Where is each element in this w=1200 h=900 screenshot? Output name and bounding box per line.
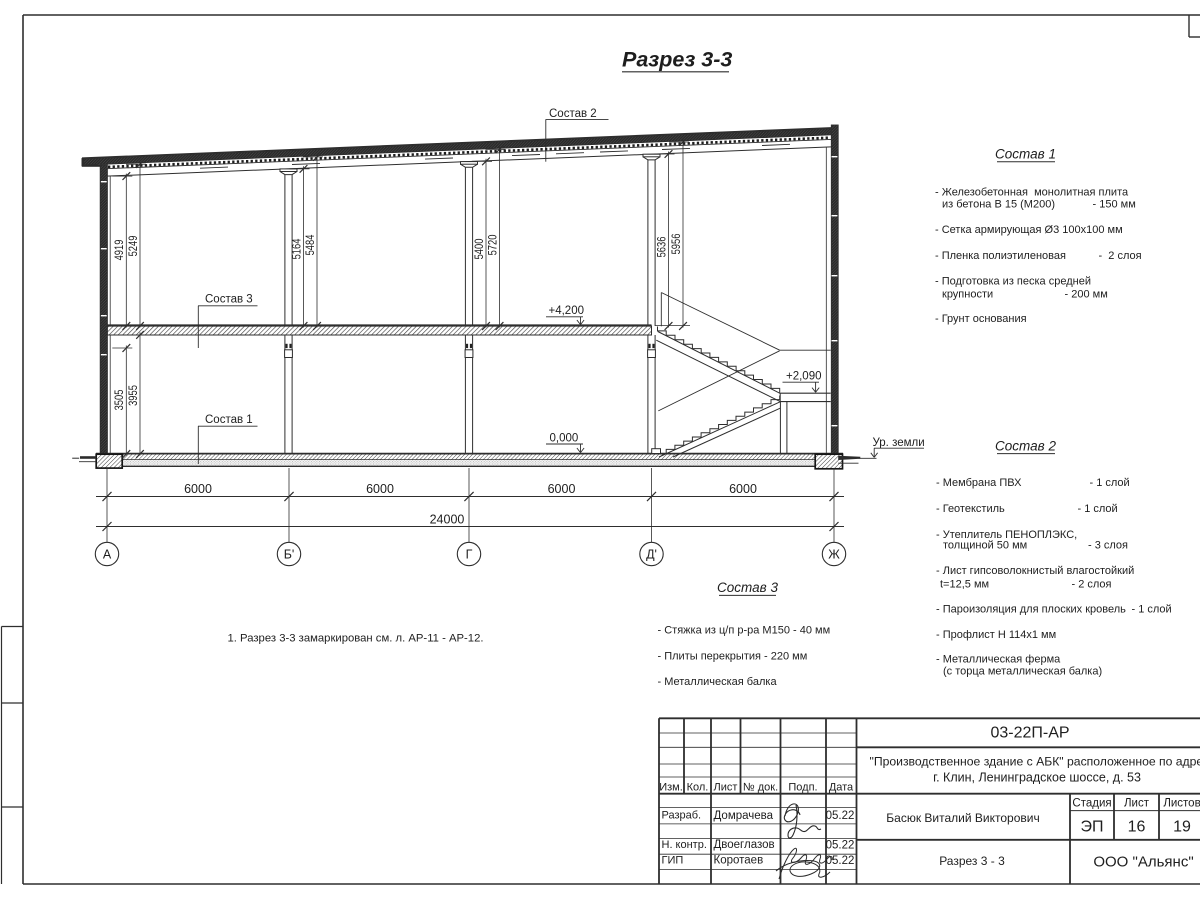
svg-text:Басюк Виталий Викторович: Басюк Виталий Викторович (886, 811, 1039, 825)
svg-text:5164: 5164 (290, 239, 303, 260)
svg-text:Ур. земли: Ур. земли (873, 437, 925, 449)
svg-text:16: 16 (1128, 819, 1146, 836)
svg-text:Состав 1: Состав 1 (995, 147, 1056, 162)
svg-text:- Металлическая балка: - Металлическая балка (658, 676, 778, 688)
svg-text:+4,200: +4,200 (549, 305, 585, 317)
svg-text:6000: 6000 (366, 482, 394, 496)
svg-text:№ док.: № док. (743, 782, 778, 794)
svg-text:05.22: 05.22 (826, 810, 855, 822)
svg-text:(с торца металлическая балка): (с торца металлическая балка) (943, 666, 1102, 678)
svg-text:- 2 слоя: - 2 слоя (1072, 578, 1112, 590)
svg-text:Коротаев: Коротаев (714, 855, 764, 867)
svg-text:6000: 6000 (729, 482, 757, 496)
svg-text:- Металлическая ферма: - Металлическая ферма (936, 653, 1061, 665)
svg-text:- Сетка армирующая Ø3 100х100: - Сетка армирующая Ø3 100х100 мм (935, 224, 1123, 236)
svg-text:"Производственное здание с АБК: "Производственное здание с АБК" располож… (870, 755, 1200, 769)
svg-text:- Пароизоляция для плоских кро: - Пароизоляция для плоских кровель (936, 603, 1126, 615)
svg-text:Кол.: Кол. (687, 782, 709, 794)
svg-text:Двоеглазов: Двоеглазов (714, 839, 775, 851)
svg-text:t=12,5 мм: t=12,5 мм (940, 578, 989, 590)
svg-text:г. Клин, Ленинградское шоссе,: г. Клин, Ленинградское шоссе, д. 53 (933, 770, 1141, 784)
svg-text:- 1 слой: - 1 слой (1078, 503, 1118, 515)
svg-text:3505: 3505 (113, 390, 126, 411)
svg-text:- 1 слой: - 1 слой (1132, 603, 1172, 615)
svg-text:5956: 5956 (670, 234, 683, 255)
svg-text:Состав 2: Состав 2 (995, 438, 1056, 453)
svg-text:Разрез 3-3: Разрез 3-3 (622, 48, 732, 72)
svg-text:24000: 24000 (430, 512, 465, 526)
svg-text:ГИП: ГИП (662, 855, 684, 867)
svg-text:Стадия: Стадия (1072, 798, 1111, 810)
svg-text:Б': Б' (284, 547, 295, 561)
svg-text:Н. контр.: Н. контр. (662, 839, 707, 851)
svg-text:- 200 мм: - 200 мм (1065, 288, 1108, 300)
svg-text:1. Разрез 3-3 замаркирован см.: 1. Разрез 3-3 замаркирован см. л. АР-11 … (228, 633, 484, 645)
svg-text:Лист: Лист (1124, 798, 1150, 810)
svg-text:+2,090: +2,090 (786, 371, 822, 383)
svg-text:3955: 3955 (127, 385, 140, 406)
svg-text:5720: 5720 (486, 235, 499, 256)
svg-text:- 2 слоя: - 2 слоя (1099, 250, 1142, 262)
svg-text:А: А (103, 547, 112, 561)
svg-text:Д': Д' (646, 547, 657, 561)
svg-text:6000: 6000 (548, 482, 576, 496)
svg-text:5636: 5636 (655, 237, 668, 258)
svg-text:Состав 2: Состав 2 (549, 108, 597, 120)
svg-text:- Мембрана ПВХ: - Мембрана ПВХ (936, 477, 1022, 489)
svg-text:ООО "Альянс": ООО "Альянс" (1093, 853, 1193, 870)
svg-text:ЭП: ЭП (1081, 819, 1104, 836)
svg-text:Разраб.: Разраб. (662, 810, 702, 822)
svg-text:19: 19 (1173, 819, 1191, 836)
svg-text:- Подготовка из песка средней: - Подготовка из песка средней (935, 276, 1091, 288)
svg-text:Подп.: Подп. (788, 782, 817, 794)
svg-text:5484: 5484 (304, 235, 317, 256)
svg-text:0,000: 0,000 (550, 432, 579, 444)
svg-text:Ж: Ж (828, 547, 840, 561)
svg-text:Изм.: Изм. (659, 782, 683, 794)
svg-text:Состав 1: Состав 1 (205, 414, 253, 426)
svg-text:Г: Г (466, 547, 473, 561)
svg-text:- 1 слой: - 1 слой (1090, 477, 1130, 489)
svg-text:Листов: Листов (1163, 798, 1200, 810)
svg-text:- Геотекстиль: - Геотекстиль (936, 503, 1005, 515)
svg-text:- 150 мм: - 150 мм (1093, 199, 1136, 211)
svg-text:Состав 3: Состав 3 (205, 294, 253, 306)
svg-text:- Лист гипсоволокнистый влагос: - Лист гипсоволокнистый влагостойкий (936, 565, 1134, 577)
svg-text:Лист: Лист (714, 782, 738, 794)
svg-text:05.22: 05.22 (826, 840, 855, 852)
svg-text:5400: 5400 (473, 239, 486, 260)
svg-text:- Пленка полиэтиленовая: - Пленка полиэтиленовая (935, 250, 1066, 262)
svg-text:- Железобетонная монолитная п: - Железобетонная монолитная плита (935, 186, 1129, 198)
svg-text:5249: 5249 (127, 236, 140, 257)
svg-text:- Стяжка из ц/п р-ра М150 - 40: - Стяжка из ц/п р-ра М150 - 40 мм (658, 625, 831, 637)
svg-text:6000: 6000 (184, 482, 212, 496)
svg-text:Состав 3: Состав 3 (717, 580, 778, 595)
svg-text:- Плиты перекрытия - 220 мм: - Плиты перекрытия - 220 мм (658, 650, 808, 662)
svg-text:Дата: Дата (829, 782, 854, 794)
svg-text:- Профлист Н 114х1 мм: - Профлист Н 114х1 мм (936, 629, 1056, 641)
svg-text:Разрез 3 - 3: Разрез 3 - 3 (939, 854, 1005, 868)
svg-text:толщиной 50 мм: толщиной 50 мм (943, 539, 1027, 551)
svg-text:4919: 4919 (113, 240, 126, 261)
svg-text:03-22П-АР: 03-22П-АР (990, 725, 1069, 742)
svg-text:крупности: крупности (942, 288, 993, 300)
svg-text:Домрачева: Домрачева (714, 810, 774, 822)
svg-text:- 3 слоя: - 3 слоя (1088, 539, 1128, 551)
svg-text:из бетона В 15 (М200): из бетона В 15 (М200) (942, 199, 1055, 211)
svg-text:- Грунт основания: - Грунт основания (935, 313, 1027, 325)
